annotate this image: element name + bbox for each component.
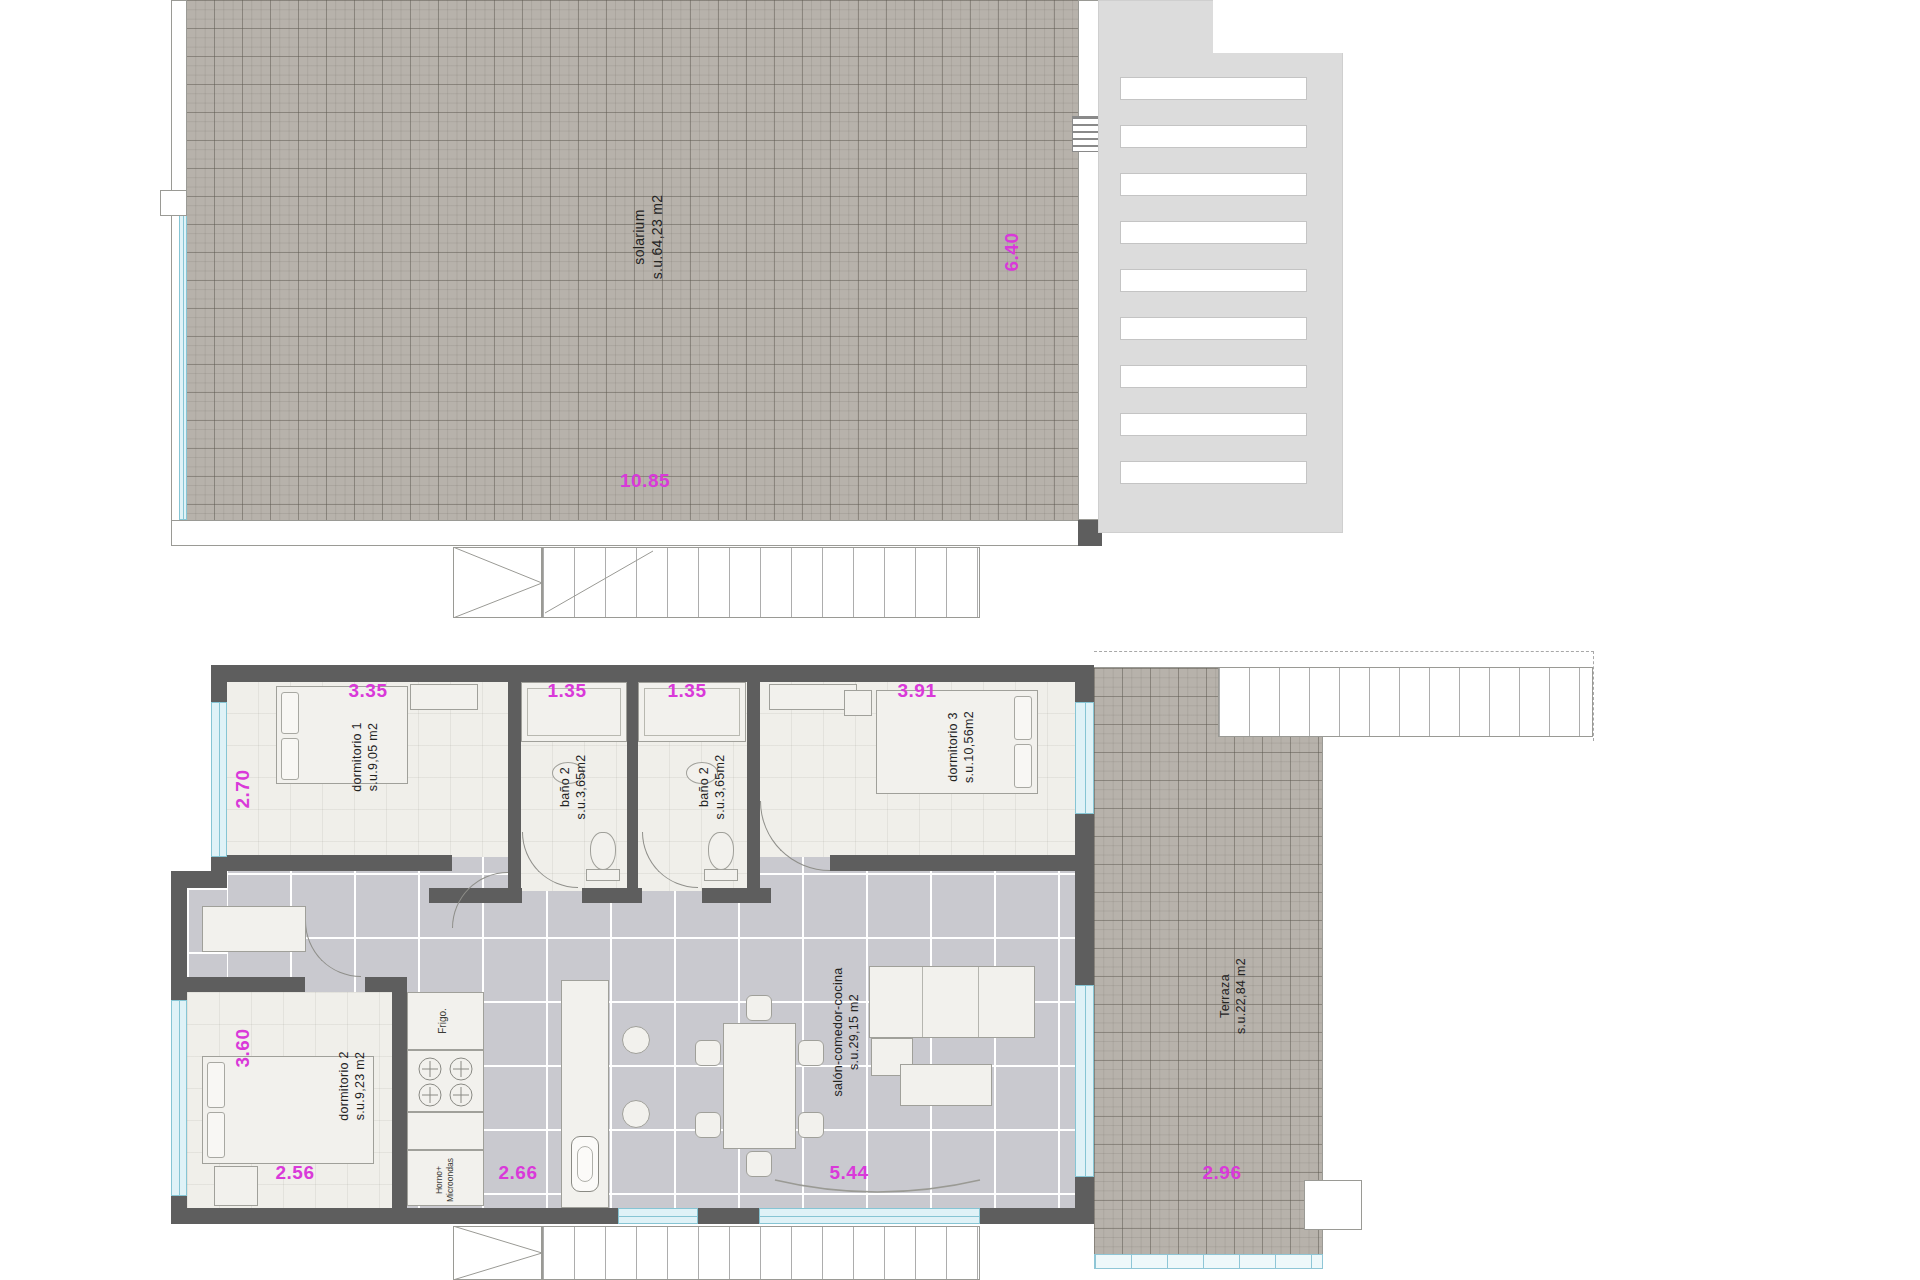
solarium-left-glass: [179, 205, 187, 520]
nightstand-dormitorio3: [844, 690, 872, 716]
label-oven-line2: Microondas: [445, 1158, 456, 1202]
room-label-dormitorio2: dormitorio 2 s.u.9,23 m2: [336, 1051, 369, 1121]
louver-slat: [1120, 173, 1307, 196]
roof-access-ladder-icon: [1072, 116, 1100, 152]
room-area: s.u.3,65m2: [573, 755, 589, 820]
room-name: Terraza: [1217, 958, 1233, 1034]
terraza-balustrade: [1094, 1254, 1323, 1269]
dining-table: [723, 1023, 796, 1149]
room-label-salon: salón-comedor-cocina s.u.29,15 m2: [830, 968, 863, 1097]
pillow: [1014, 696, 1032, 740]
dresser-dormitorio2: [214, 1166, 258, 1206]
pillow: [281, 738, 299, 780]
wall-below-banos-seg2: [582, 888, 642, 903]
wall-dorm2-right: [392, 977, 407, 1218]
dim-left-1: 2.70: [232, 770, 254, 809]
sliding-door-terraza: [1075, 985, 1094, 1177]
solarium-left-window-tab: [160, 190, 187, 216]
pillow: [281, 692, 299, 734]
louver-slat: [1120, 221, 1307, 244]
wall-below-dorm1: [226, 855, 452, 871]
wall-dorm1-banoA: [508, 681, 521, 903]
lower-stairs: [542, 1226, 980, 1280]
bar-stool: [622, 1026, 650, 1054]
room-area: s.u.22,84 m2: [1233, 958, 1249, 1034]
louver-slat: [1120, 269, 1307, 292]
tv-unit: [900, 1064, 992, 1106]
wall-banoA-banoB: [627, 681, 638, 903]
louver-slat: [1120, 317, 1307, 340]
pergola-notch: [1213, 0, 1343, 53]
dim-bottom-3: 5.44: [830, 1162, 869, 1184]
toilet-tank-bano-a: [586, 869, 620, 881]
hob-burners-icon: [410, 1053, 481, 1109]
room-label-dormitorio1: dormitorio 1 s.u.9,05 m2: [349, 722, 382, 792]
dim-bottom-2: 2.66: [499, 1162, 538, 1184]
curtain-curve-icon: [770, 1170, 985, 1204]
window-dormitorio1: [211, 702, 227, 857]
label-fridge: Frigo.: [437, 1008, 450, 1034]
pillow: [1014, 744, 1032, 788]
dim-top-3: 1.35: [668, 680, 707, 702]
room-label-bano-a: baño 2 s.u.3,65m2: [557, 755, 590, 820]
upper-stairs-arrow-lines: [453, 547, 703, 618]
dim-top-4: 3.91: [898, 680, 937, 702]
wall-below-banos-seg3: [702, 888, 771, 903]
room-name: dormitorio 2: [336, 1051, 352, 1121]
floor-plan-sheet: solarium s.u.64,23 m2 10.85 6.40: [0, 0, 1920, 1280]
dining-chair: [695, 1112, 721, 1138]
louver-slat: [1120, 77, 1307, 100]
pillow: [207, 1112, 225, 1158]
dining-chair: [695, 1040, 721, 1066]
dining-chair: [746, 995, 772, 1021]
dim-top-2: 1.35: [548, 680, 587, 702]
dining-chair: [798, 1040, 824, 1066]
sliding-door-salon: [759, 1208, 980, 1224]
kitchen-counter: [407, 1112, 484, 1150]
toilet-bano-a: [590, 832, 616, 870]
room-name: dormitorio 3: [945, 711, 961, 783]
louver-slat: [1120, 365, 1307, 388]
dining-chair: [798, 1112, 824, 1138]
dashed-line-vertical: [1593, 651, 1594, 741]
wall-banoB-dorm3: [747, 681, 760, 903]
label-oven-microwave: Horno+ Microondas: [434, 1158, 455, 1202]
room-area: s.u.64,23 m2: [648, 195, 666, 280]
pillow: [207, 1062, 225, 1108]
sofa-seam: [978, 967, 979, 1037]
dim-solarium-width: 10.85: [620, 470, 670, 492]
toilet-tank-bano-b: [704, 869, 738, 881]
room-name: baño 2: [696, 755, 712, 820]
room-name: salón-comedor-cocina: [830, 968, 846, 1097]
room-label-bano-b: baño 2 s.u.3,65m2: [696, 755, 729, 820]
room-label-solarium: solarium s.u.64,23 m2: [630, 195, 666, 280]
louver-slat: [1120, 461, 1307, 484]
room-name: dormitorio 1: [349, 722, 365, 792]
label-oven-line1: Horno+: [434, 1158, 445, 1202]
lower-stairs-lines: [453, 1226, 542, 1280]
window-kitchen: [618, 1208, 698, 1224]
wall-dorm2-top-seg1: [187, 977, 305, 992]
room-name: solarium: [630, 195, 648, 280]
sofa: [869, 966, 1035, 1038]
louver-slat: [1120, 413, 1307, 436]
room-area: s.u.9,23 m2: [352, 1051, 368, 1121]
room-name: baño 2: [557, 755, 573, 820]
room-area: s.u.29,15 m2: [846, 968, 862, 1097]
window-dormitorio3: [1075, 702, 1094, 814]
dim-left-2: 3.60: [232, 1029, 254, 1068]
dim-bottom-1: 2.56: [276, 1162, 315, 1184]
dining-chair: [746, 1151, 772, 1177]
solarium-bottom-wall: [171, 520, 1102, 546]
room-label-dormitorio3: dormitorio 3 s.u.10,56m2: [945, 711, 978, 783]
hall-closet: [202, 906, 306, 952]
terraza-ac-unit: [1304, 1180, 1362, 1230]
room-label-terraza: Terraza s.u.22,84 m2: [1217, 958, 1250, 1034]
bar-stool: [622, 1100, 650, 1128]
dim-top-1: 3.35: [349, 680, 388, 702]
room-area: s.u.3,65m2: [712, 755, 728, 820]
room-area: s.u.10,56m2: [961, 711, 977, 783]
toilet-bano-b: [708, 832, 734, 870]
window-dormitorio2: [171, 1000, 187, 1196]
island-sink-basin: [577, 1146, 593, 1182]
wall-top: [211, 665, 1094, 682]
wardrobe-dormitorio1: [410, 684, 478, 710]
exterior-stairs-upper: [1218, 667, 1593, 737]
sofa-seam: [922, 967, 923, 1037]
louver-slat: [1120, 125, 1307, 148]
dim-solarium-height: 6.40: [1001, 233, 1023, 272]
dim-bottom-4: 2.96: [1203, 1162, 1242, 1184]
dashed-line-horizontal: [1094, 651, 1594, 652]
room-area: s.u.9,05 m2: [365, 722, 381, 792]
wall-below-dorm3: [830, 855, 1075, 871]
